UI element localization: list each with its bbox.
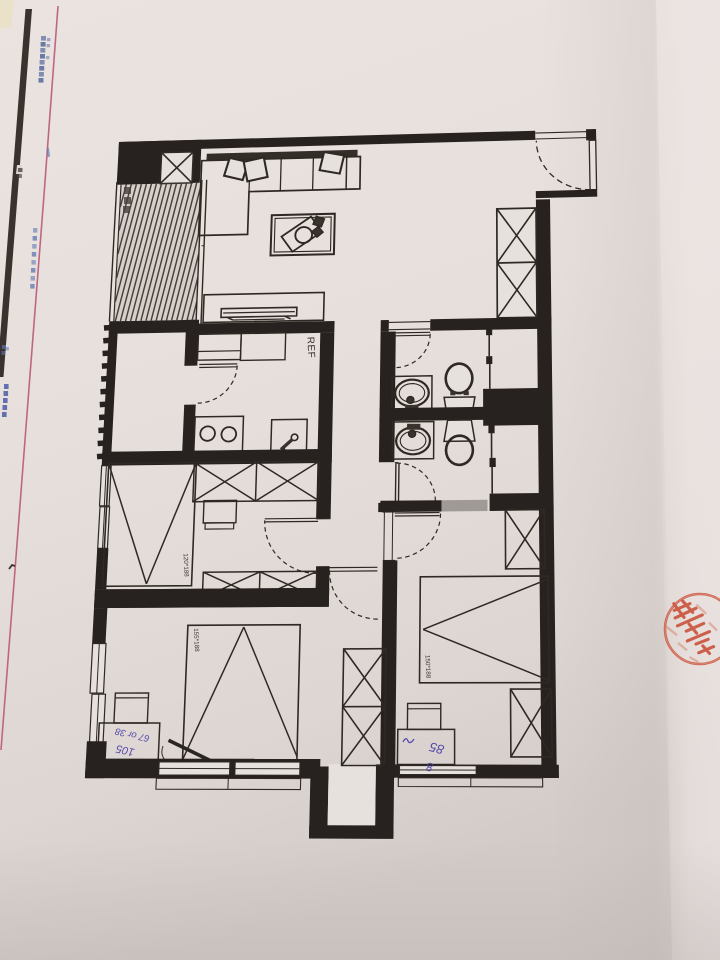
svg-text:REF: REF — [304, 337, 316, 359]
svg-text:150*188: 150*188 — [423, 655, 431, 679]
svg-text:120*188: 120*188 — [182, 553, 190, 577]
svg-text:155*188: 155*188 — [192, 628, 200, 652]
